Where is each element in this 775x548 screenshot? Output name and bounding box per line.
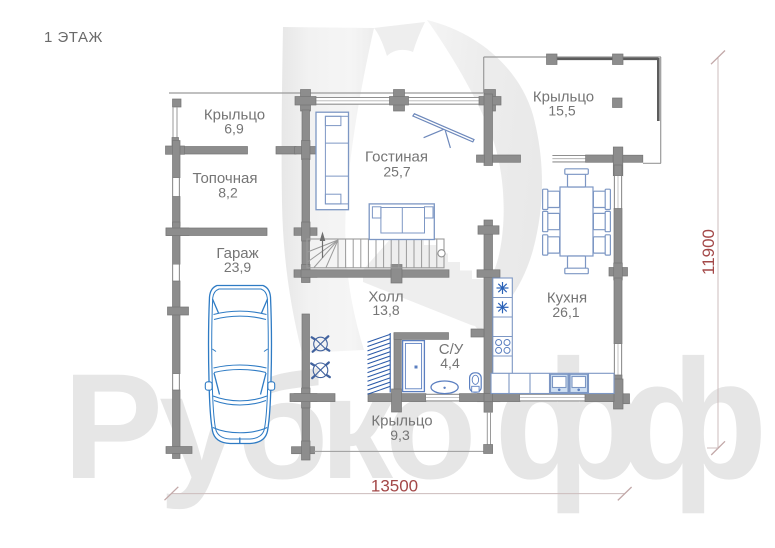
- svg-text:23,9: 23,9: [224, 259, 251, 275]
- svg-text:13500: 13500: [371, 477, 418, 496]
- svg-text:26,1: 26,1: [552, 304, 579, 320]
- svg-text:1 ЭТАЖ: 1 ЭТАЖ: [44, 29, 103, 46]
- svg-text:9,3: 9,3: [390, 427, 410, 443]
- svg-text:6,9: 6,9: [224, 121, 244, 137]
- svg-text:15,5: 15,5: [548, 103, 575, 119]
- svg-text:11900: 11900: [699, 229, 718, 275]
- svg-text:13,8: 13,8: [372, 302, 399, 318]
- svg-text:4,4: 4,4: [440, 355, 460, 371]
- svg-text:8,2: 8,2: [218, 185, 238, 201]
- svg-text:25,7: 25,7: [383, 164, 410, 180]
